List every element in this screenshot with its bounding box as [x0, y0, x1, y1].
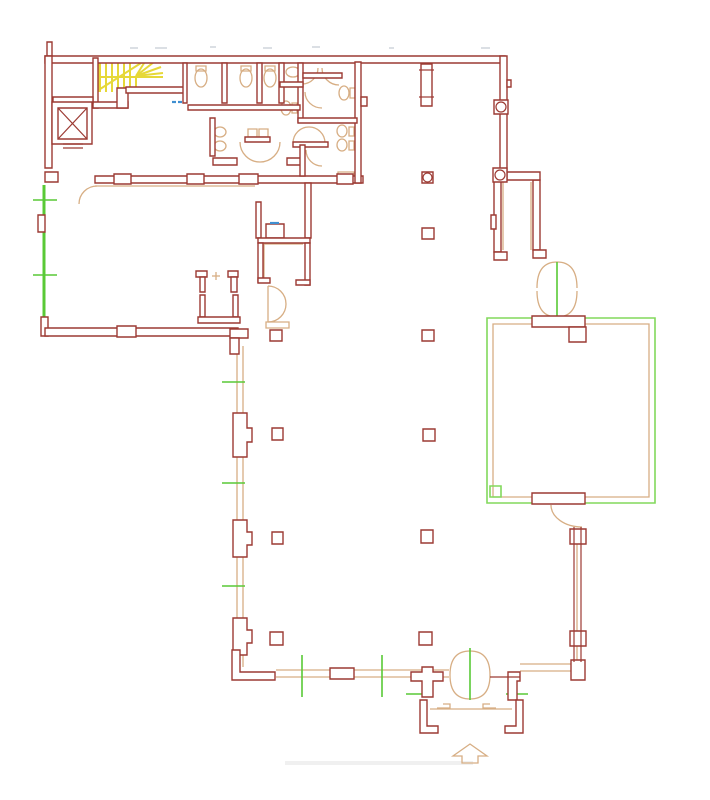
wall-left: [45, 56, 52, 168]
green-marker-square: [490, 486, 501, 497]
restroom-wall: [300, 145, 305, 176]
column: [419, 632, 432, 645]
column: [422, 172, 433, 183]
restroom-wall: [303, 73, 342, 78]
urinal: [259, 129, 268, 137]
door-swing-arc: [551, 505, 582, 527]
restroom-wall: [245, 137, 270, 142]
column: [272, 532, 283, 544]
floorplan-canvas: [0, 0, 710, 800]
closet-wall: [233, 295, 238, 317]
column: [270, 632, 283, 645]
wall-leftroom-bottom: [45, 328, 238, 336]
bifold-door: [268, 286, 286, 322]
niche-wall: [305, 183, 311, 238]
big-room-door-header: [532, 316, 585, 327]
sink: [214, 141, 226, 151]
right-wall-corner: [571, 660, 585, 680]
stall-partition: [257, 63, 262, 103]
vestibule-foot: [505, 700, 523, 733]
fixtures-tan: [79, 66, 649, 763]
square-room-wall: [258, 238, 310, 243]
wall-top-notch: [47, 42, 52, 56]
big-room-door-header: [532, 493, 585, 504]
door-swing-arc: [309, 127, 325, 143]
restroom-wall: [293, 142, 328, 147]
partition-stub: [228, 271, 238, 277]
restroom-wall: [213, 158, 237, 165]
window-frame: [114, 174, 131, 184]
window-frame: [117, 326, 136, 337]
storefront-corner-bottom: [232, 650, 275, 680]
toilet: [195, 69, 207, 87]
restroom-wall-jog: [361, 97, 367, 106]
partition-stub: [231, 277, 237, 292]
toilet: [337, 125, 347, 137]
toilet: [337, 139, 347, 151]
walls-red: [38, 42, 586, 733]
closet-wall: [200, 295, 205, 317]
floorplan-drawing: [0, 0, 710, 800]
column: [422, 330, 434, 341]
partition-stub: [200, 277, 205, 292]
smudge-bottom: [285, 761, 473, 765]
square-room-wall: [258, 243, 263, 282]
entry-pilaster-right: [508, 672, 520, 700]
vestibule-foot: [420, 700, 438, 733]
column: [270, 330, 282, 341]
column: [423, 429, 435, 441]
square-room-wall: [258, 278, 270, 283]
restroom-wall: [210, 118, 215, 156]
vestibule-wall: [533, 180, 540, 250]
wall-stub-west: [45, 172, 58, 182]
square-room-sill: [266, 322, 289, 328]
restroom-wall-mid: [188, 105, 300, 110]
artifact-smudges: [285, 761, 473, 765]
toilet-tank: [349, 141, 354, 150]
vestibule-jog: [491, 215, 496, 229]
toilet-tank: [349, 127, 354, 136]
toilet: [240, 69, 252, 87]
vestibule-foot: [494, 252, 507, 260]
duct-box: [266, 224, 284, 238]
door-swing-arc: [293, 127, 309, 143]
toilet: [339, 86, 349, 100]
window-frame: [337, 174, 353, 184]
restroom-wall: [298, 118, 357, 123]
window-frame: [330, 668, 354, 679]
right-wall-block: [570, 529, 586, 544]
stair-wall-left: [93, 58, 98, 108]
column: [422, 228, 434, 239]
wall-corridor: [95, 176, 363, 183]
door-swing-arc: [305, 92, 322, 108]
entry-door-hardware: [437, 704, 450, 708]
storefront-pilaster: [233, 520, 252, 557]
storefront-corner: [230, 329, 248, 338]
toilet: [264, 69, 276, 87]
sink: [214, 127, 226, 137]
urinal: [248, 129, 257, 137]
artifact-dashes: [130, 47, 490, 48]
stall-partition: [183, 63, 187, 103]
room-green-outline: [487, 318, 655, 503]
square-room-wall: [296, 280, 310, 285]
restroom-wall: [280, 82, 303, 87]
door-swing-arc: [79, 186, 97, 204]
wall-right-stub: [507, 80, 511, 87]
window-frame: [187, 174, 204, 184]
closet-wall: [198, 317, 240, 323]
vestibule-top-link: [507, 172, 540, 180]
stair-wall-bottom2: [126, 87, 186, 93]
double-door-leaf: [470, 651, 490, 699]
double-door-leaf: [450, 651, 470, 699]
niche-wall: [256, 202, 261, 238]
big-room-header-notch: [569, 327, 586, 342]
storefront-pilaster: [233, 413, 252, 457]
stall-partition: [222, 63, 227, 103]
door-swing-arc: [240, 142, 260, 162]
window-wall-break: [38, 215, 45, 232]
entry-pilaster-cross: [411, 667, 443, 697]
window-frame: [239, 174, 258, 184]
entry-door-hardware: [483, 704, 496, 708]
partition-stub: [196, 271, 207, 277]
big-room-inner-outline: [493, 324, 649, 497]
toilet-tank: [350, 88, 355, 98]
column: [421, 530, 433, 543]
window-green-ticks: [33, 200, 557, 700]
wall-top: [45, 56, 505, 63]
column: [272, 428, 283, 440]
door-swing-arc: [260, 142, 280, 162]
right-wall-block: [570, 631, 586, 646]
big-room-outer-outline: [487, 318, 655, 503]
entry-arrow: [453, 744, 487, 763]
door-swing-arc: [306, 150, 322, 166]
vestibule-foot: [533, 250, 546, 258]
storefront-corner: [230, 338, 239, 354]
square-room-wall: [305, 243, 310, 285]
restroom-wall: [298, 63, 303, 122]
